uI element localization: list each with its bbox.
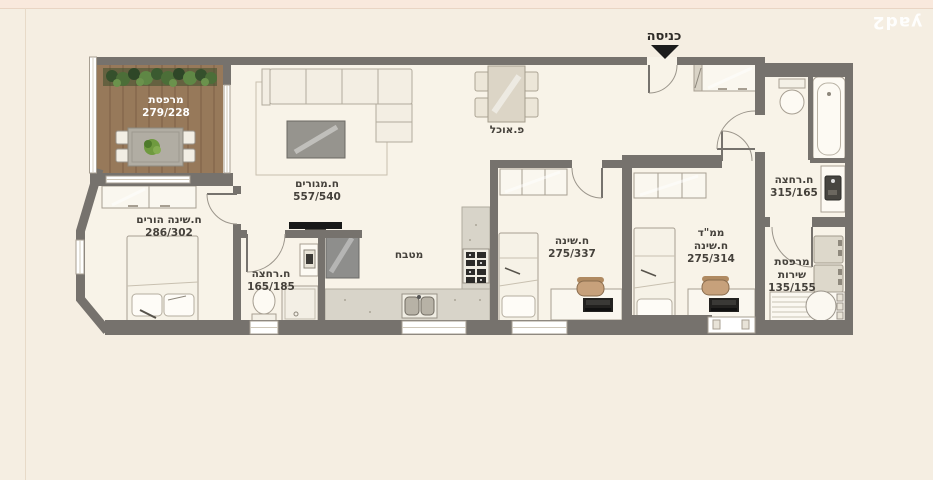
wardrobe-parents bbox=[102, 186, 196, 208]
room-label-parents-bedroom: ח.שינה הורים 286/302 bbox=[136, 214, 201, 240]
room-label-service-balcony: מרפסת שירות 135/155 bbox=[768, 256, 816, 295]
kitchen-sink bbox=[402, 294, 437, 318]
floor-plan-page: yad2 כניסה מרפסת 279/228 ח.מגורים 557/54… bbox=[0, 0, 933, 480]
coffee-table bbox=[287, 121, 345, 158]
stove bbox=[463, 249, 489, 283]
room-label-bathroom-small: ח.רחצה 165/185 bbox=[247, 268, 295, 294]
hallway-closet bbox=[694, 64, 758, 91]
refrigerator bbox=[326, 231, 359, 278]
double-bed bbox=[127, 236, 198, 322]
brand-logo: yad2 bbox=[868, 2, 926, 32]
entrance-label: כניסה bbox=[647, 29, 682, 44]
room-label-bedroom: ח.שינה 275/337 bbox=[548, 235, 596, 261]
room-label-dining: פ.אוכל bbox=[490, 124, 524, 137]
room-label-kitchen: מטבח bbox=[395, 249, 423, 262]
room-label-living: ח.מגורים 557/540 bbox=[293, 178, 341, 204]
room-label-balcony: מרפסת 279/228 bbox=[142, 94, 190, 120]
room-label-bathroom-main: ח.רחצה 315/165 bbox=[770, 174, 818, 200]
entrance-arrow-icon bbox=[651, 45, 679, 59]
room-label-mamad: ממ"ד ח.שינה 275/314 bbox=[687, 227, 735, 266]
balcony-table-set bbox=[116, 128, 195, 166]
balcony-plants bbox=[103, 68, 217, 87]
